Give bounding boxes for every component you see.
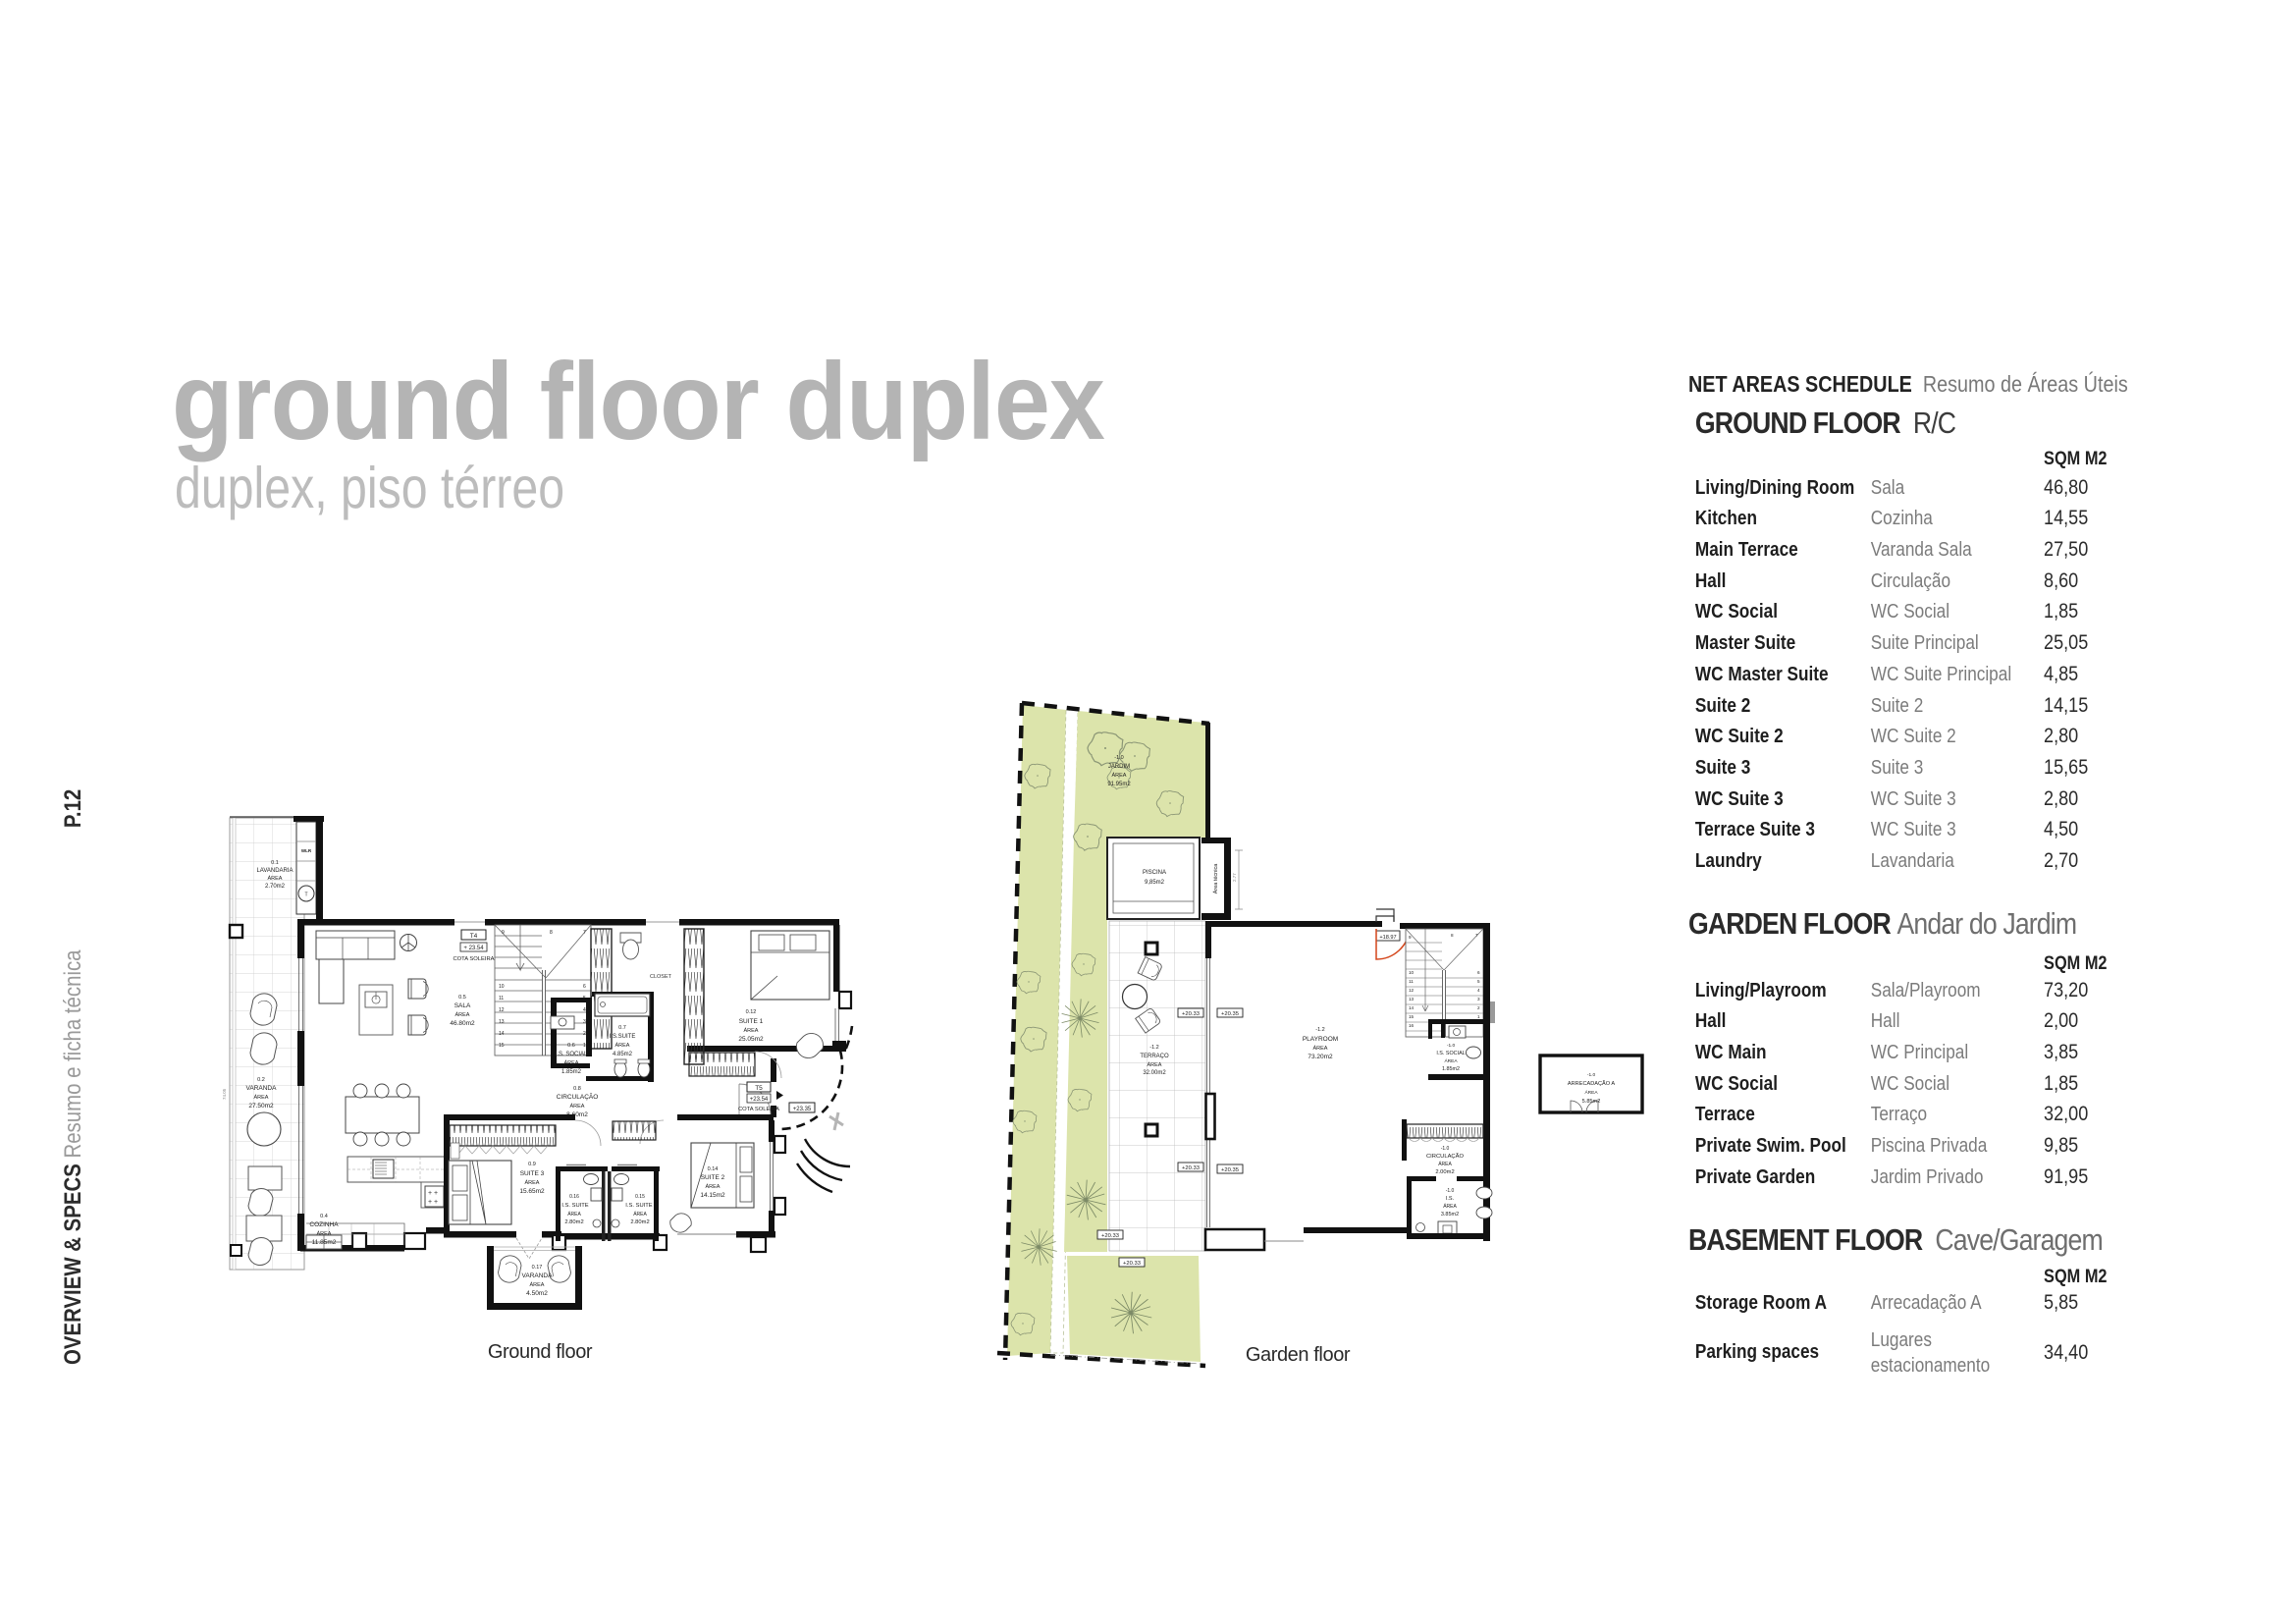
svg-text:+20.33: +20.33	[1182, 1165, 1200, 1171]
svg-text:I.S. SUITE: I.S. SUITE	[625, 1203, 653, 1209]
svg-text:46.80m2: 46.80m2	[450, 1020, 475, 1027]
svg-text:91.95m2: 91.95m2	[1107, 782, 1131, 787]
svg-text:0.9: 0.9	[528, 1162, 536, 1167]
svg-text:13: 13	[499, 1019, 505, 1025]
svg-text:0.8: 0.8	[573, 1086, 581, 1092]
svg-text:+20.35: +20.35	[1221, 1011, 1239, 1017]
svg-text:+ +: + +	[428, 1190, 438, 1197]
svg-text:TERRAÇO: TERRAÇO	[1140, 1054, 1169, 1059]
svg-text:0.16: 0.16	[569, 1194, 579, 1200]
svg-text:ÁREA: ÁREA	[455, 1011, 470, 1018]
svg-text:2.70m2: 2.70m2	[265, 884, 286, 890]
svg-text:0.7: 0.7	[618, 1025, 626, 1031]
svg-text:0.17: 0.17	[532, 1265, 543, 1271]
svg-text:CLOSET: CLOSET	[650, 974, 672, 980]
svg-text:I.S. SUITE: I.S. SUITE	[561, 1203, 589, 1209]
svg-text:2.00m2: 2.00m2	[1435, 1169, 1454, 1175]
svg-text:+23.54: +23.54	[750, 1097, 769, 1103]
svg-text:0.6: 0.6	[567, 1043, 575, 1049]
svg-text:LAVANDARIA: LAVANDARIA	[256, 868, 293, 874]
svg-text:11: 11	[499, 996, 504, 1001]
svg-text:14.15m2: 14.15m2	[700, 1192, 725, 1199]
svg-text:-1.0: -1.0	[1447, 1043, 1456, 1049]
svg-text:15.65m2: 15.65m2	[519, 1188, 545, 1195]
svg-text:1: 1	[583, 1043, 586, 1049]
svg-text:T4: T4	[470, 933, 478, 940]
svg-text:PLAYROOM: PLAYROOM	[1303, 1036, 1338, 1043]
svg-text:ÁREA: ÁREA	[1148, 1061, 1162, 1068]
svg-text:11: 11	[1409, 979, 1414, 984]
svg-text:ÁREA: ÁREA	[564, 1059, 579, 1066]
svg-text:27.50m2: 27.50m2	[248, 1103, 274, 1110]
svg-text:I.S. SOCIAL: I.S. SOCIAL	[556, 1052, 588, 1057]
svg-text:4: 4	[583, 1007, 586, 1013]
svg-text:13: 13	[1409, 997, 1415, 1001]
svg-text:T5: T5	[755, 1085, 763, 1092]
svg-text:ÁREA: ÁREA	[254, 1094, 269, 1101]
svg-text:12: 12	[1409, 988, 1415, 993]
svg-text:1.85m2: 1.85m2	[1442, 1066, 1460, 1072]
svg-text:-1.2: -1.2	[1149, 1045, 1158, 1051]
svg-text:+ 23.54: + 23.54	[463, 946, 484, 951]
svg-text:9: 9	[1409, 935, 1412, 940]
svg-text:ÁREA: ÁREA	[615, 1042, 630, 1049]
svg-text:I.S.SUITE: I.S.SUITE	[610, 1034, 636, 1040]
svg-text:+ +: + +	[428, 1199, 438, 1206]
svg-text:3: 3	[583, 1019, 586, 1025]
svg-text:+20.33: +20.33	[1101, 1233, 1119, 1239]
svg-text:+23.35: +23.35	[793, 1107, 812, 1112]
svg-text:32.00m2: 32.00m2	[1143, 1070, 1166, 1076]
svg-text:15: 15	[499, 1043, 505, 1049]
svg-text:14: 14	[1409, 1005, 1415, 1010]
svg-text:-1.0: -1.0	[1441, 1146, 1450, 1152]
svg-text:15: 15	[1409, 1014, 1415, 1019]
svg-text:9: 9	[502, 930, 505, 936]
svg-text:WLR: WLR	[301, 848, 312, 853]
svg-text:16: 16	[1409, 1023, 1415, 1028]
svg-text:T: T	[304, 893, 307, 898]
svg-text:-1.0: -1.0	[1446, 1188, 1455, 1194]
svg-text:8: 8	[550, 930, 553, 936]
svg-text:-1.0: -1.0	[1587, 1072, 1596, 1078]
svg-text:4.50m2: 4.50m2	[526, 1290, 548, 1297]
svg-text:0.4: 0.4	[320, 1214, 328, 1219]
svg-text:2.80m2: 2.80m2	[630, 1219, 649, 1225]
svg-text:3: 3	[1477, 997, 1480, 1001]
svg-text:I.S. SOCIAL: I.S. SOCIAL	[1436, 1051, 1465, 1056]
svg-text:0.12: 0.12	[746, 1009, 757, 1015]
svg-text:COZINHA: COZINHA	[309, 1221, 339, 1228]
svg-text:7: 7	[583, 930, 586, 936]
svg-text:COTA SOLEIRA: COTA SOLEIRA	[453, 956, 494, 962]
svg-text:10: 10	[499, 984, 505, 990]
svg-text:74.05: 74.05	[222, 1088, 227, 1100]
svg-text:73.20m2: 73.20m2	[1308, 1054, 1333, 1060]
svg-text:1: 1	[1477, 1014, 1480, 1019]
svg-text:ÁREA: ÁREA	[570, 1103, 585, 1110]
svg-text:6: 6	[583, 984, 586, 990]
svg-text:ÁREA: ÁREA	[1444, 1057, 1458, 1064]
svg-text:ÁREA: ÁREA	[1112, 772, 1127, 779]
svg-text:ÁREA: ÁREA	[530, 1281, 545, 1288]
svg-text:12: 12	[499, 1007, 505, 1013]
svg-text:+20.33: +20.33	[1182, 1011, 1200, 1017]
svg-text:4.85m2: 4.85m2	[613, 1052, 633, 1057]
svg-text:SUITE 2: SUITE 2	[701, 1174, 725, 1181]
svg-text:+20.35: +20.35	[1221, 1167, 1239, 1173]
svg-text:SUITE 1: SUITE 1	[739, 1018, 764, 1025]
svg-text:ÁREA: ÁREA	[525, 1179, 540, 1186]
svg-text:+20.33: +20.33	[1123, 1261, 1141, 1267]
svg-text:PISCINA: PISCINA	[1143, 870, 1166, 876]
svg-text:ÁREA: ÁREA	[1443, 1203, 1457, 1210]
svg-text:10: 10	[1409, 970, 1415, 975]
svg-text:VARANDA: VARANDA	[246, 1085, 278, 1092]
svg-text:ÁREA: ÁREA	[633, 1211, 647, 1218]
svg-text:2: 2	[1477, 1005, 1480, 1010]
svg-text:ARRECADAÇÃO A: ARRECADAÇÃO A	[1568, 1080, 1615, 1087]
svg-text:3.85m2: 3.85m2	[1441, 1212, 1459, 1218]
svg-text:CIRCULAÇÃO: CIRCULAÇÃO	[1426, 1153, 1464, 1160]
svg-text:0.14: 0.14	[708, 1166, 719, 1172]
svg-text:I.S.: I.S.	[1446, 1196, 1455, 1202]
svg-text:5.85m2: 5.85m2	[1582, 1099, 1601, 1105]
svg-text:11.85m2: 11.85m2	[312, 1239, 337, 1246]
svg-text:9,85m2: 9,85m2	[1145, 880, 1165, 886]
svg-text:ÁREA: ÁREA	[317, 1230, 332, 1237]
svg-text:2.80m2: 2.80m2	[564, 1219, 583, 1225]
svg-text:COTA SOLEIRA: COTA SOLEIRA	[738, 1107, 779, 1112]
svg-text:ÁREA: ÁREA	[1313, 1045, 1328, 1052]
svg-text:2.77: 2.77	[1232, 873, 1237, 882]
svg-text:ÁREA: ÁREA	[744, 1027, 759, 1034]
svg-text:-1.0: -1.0	[1114, 755, 1123, 761]
svg-text:14: 14	[499, 1031, 505, 1037]
svg-text:0.1: 0.1	[271, 860, 279, 866]
svg-text:0.5: 0.5	[458, 995, 466, 1001]
svg-text:7: 7	[1475, 933, 1478, 938]
svg-text:ÁREA: ÁREA	[268, 875, 283, 882]
svg-text:25.05m2: 25.05m2	[738, 1036, 764, 1043]
svg-text:SUITE 3: SUITE 3	[520, 1170, 545, 1177]
svg-text:ÁREA: ÁREA	[567, 1211, 581, 1218]
svg-text:ÁREA: ÁREA	[1584, 1089, 1598, 1096]
svg-text:SALA: SALA	[454, 1002, 471, 1009]
svg-text:1.85m2: 1.85m2	[561, 1069, 582, 1075]
svg-text:4: 4	[1477, 988, 1480, 993]
svg-text:6: 6	[1477, 970, 1480, 975]
svg-text:8: 8	[1451, 933, 1454, 938]
svg-text:+18.97: +18.97	[1379, 935, 1396, 941]
svg-text:0.2: 0.2	[257, 1077, 265, 1083]
svg-text:0.15: 0.15	[635, 1194, 645, 1200]
svg-text:Área técnica: Área técnica	[1212, 863, 1219, 894]
svg-text:JARDIM: JARDIM	[1108, 764, 1130, 770]
svg-text:-1.2: -1.2	[1315, 1027, 1324, 1033]
svg-text:2: 2	[583, 1031, 586, 1037]
svg-text:CIRCULAÇÃO: CIRCULAÇÃO	[557, 1092, 599, 1101]
svg-text:ÁREA: ÁREA	[1438, 1161, 1452, 1167]
svg-text:5: 5	[1477, 979, 1480, 984]
svg-text:ÁREA: ÁREA	[706, 1183, 721, 1190]
svg-text:VARANDA: VARANDA	[522, 1272, 554, 1279]
